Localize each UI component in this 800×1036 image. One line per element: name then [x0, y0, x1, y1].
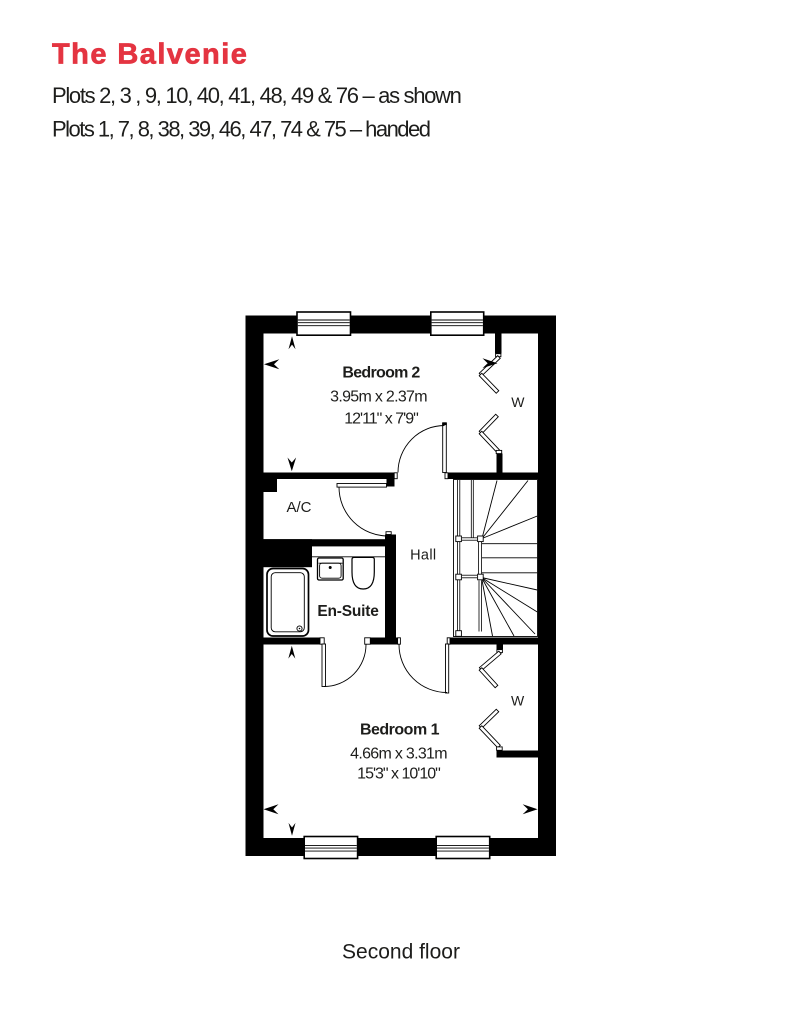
svg-text:Plots 1, 7, 8, 38, 39, 46, 47,: Plots 1, 7, 8, 38, 39, 46, 47, 74 & 75 –…: [52, 117, 430, 142]
svg-text:The Balvenie: The Balvenie: [52, 39, 248, 71]
svg-text:Bedroom 1: Bedroom 1: [360, 722, 440, 739]
svg-text:Second floor: Second floor: [342, 941, 460, 964]
svg-text:W: W: [511, 394, 525, 410]
svg-text:En-Suite: En-Suite: [317, 603, 379, 620]
svg-text:Bedroom 2: Bedroom 2: [342, 365, 420, 382]
svg-text:Plots 2, 3 , 9, 10, 40, 41, 48: Plots 2, 3 , 9, 10, 40, 41, 48, 49 & 76 …: [52, 83, 461, 108]
svg-text:15'3" x 10'10": 15'3" x 10'10": [357, 766, 440, 783]
svg-text:W: W: [511, 693, 525, 709]
svg-text:3.95m x 2.37m: 3.95m x 2.37m: [330, 389, 427, 406]
svg-text:4.66m x 3.31m: 4.66m x 3.31m: [350, 746, 447, 763]
svg-text:12'11" x 7'9": 12'11" x 7'9": [344, 411, 418, 428]
svg-text:A/C: A/C: [286, 499, 311, 516]
svg-text:Hall: Hall: [410, 548, 436, 564]
